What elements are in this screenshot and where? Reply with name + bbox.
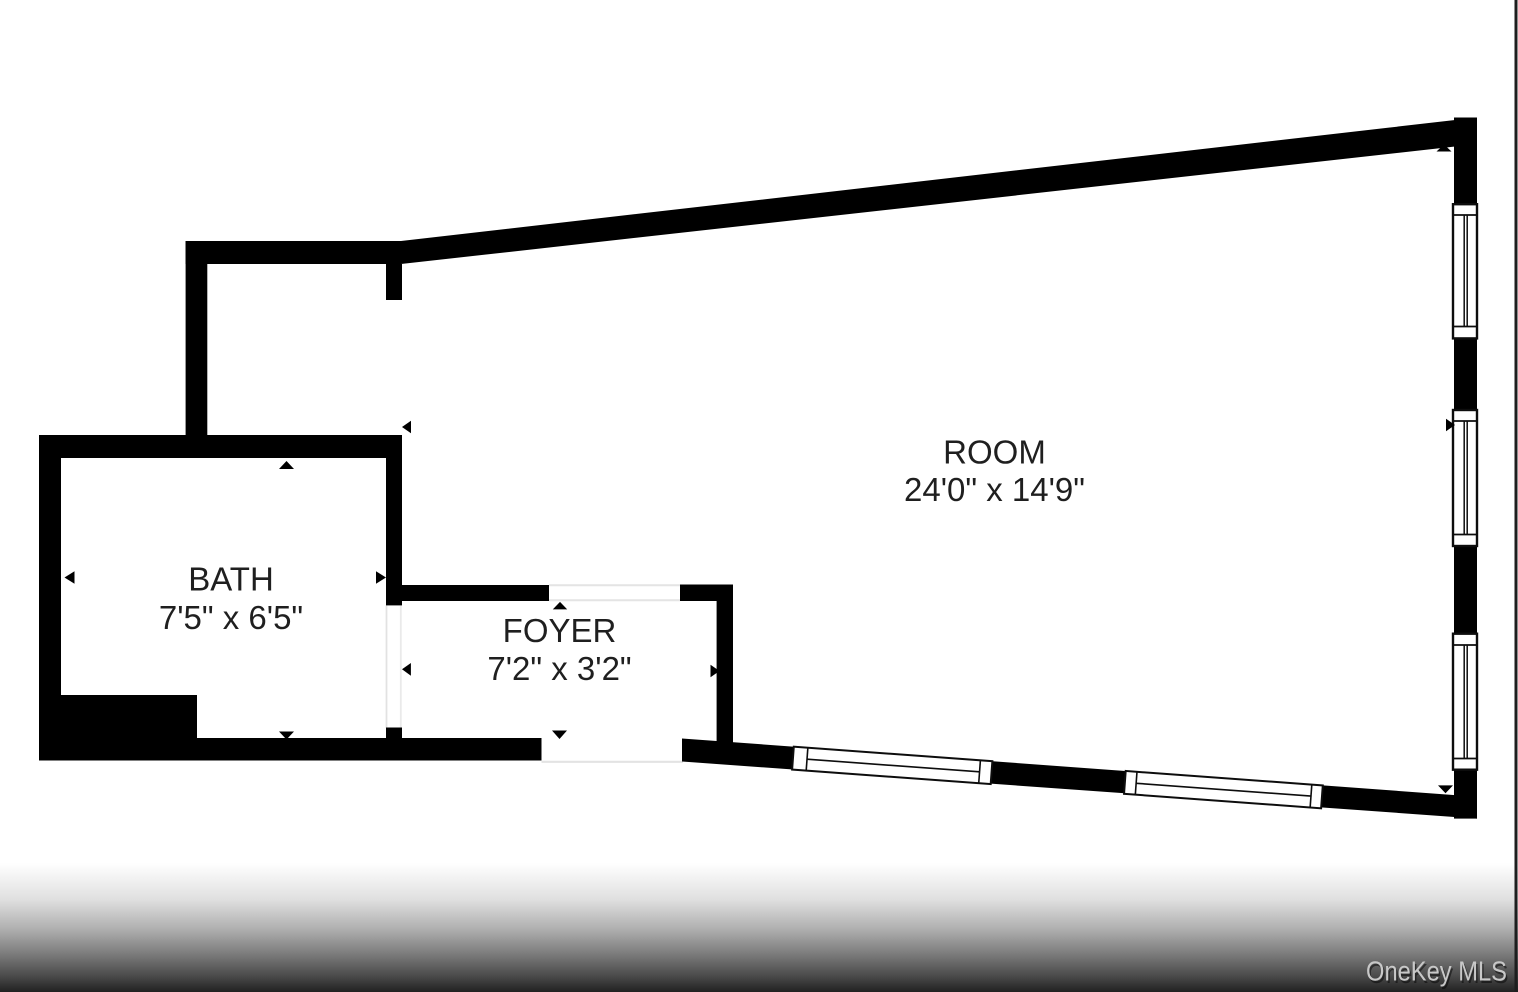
svg-text:7'2" x 3'2": 7'2" x 3'2" — [487, 650, 631, 687]
svg-text:ROOM: ROOM — [943, 434, 1046, 471]
svg-text:BATH: BATH — [188, 561, 274, 598]
svg-text:24'0" x 14'9": 24'0" x 14'9" — [904, 471, 1085, 508]
svg-text:FOYER: FOYER — [503, 612, 617, 649]
svg-text:OneKey MLS: OneKey MLS — [1366, 956, 1507, 987]
svg-text:7'5" x 6'5": 7'5" x 6'5" — [159, 599, 303, 636]
